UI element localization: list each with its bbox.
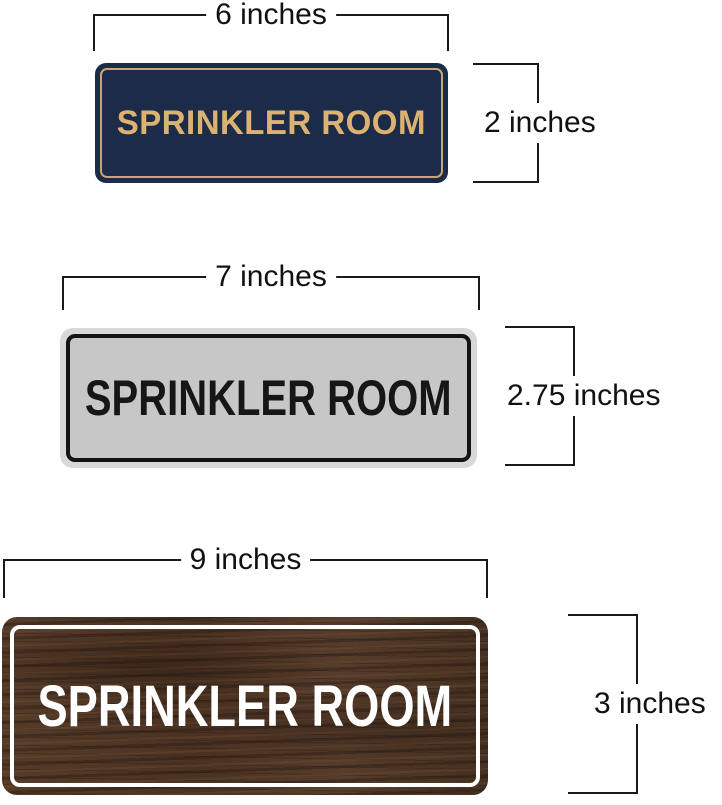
dimension-tick-bottom <box>473 181 539 183</box>
height-dimension-2-75in: 2.75 inches <box>505 326 575 466</box>
width-dimension-6in: 6 inches <box>93 14 449 51</box>
dimension-tick-top <box>473 63 539 65</box>
dimension-tick-right <box>447 14 449 51</box>
dimension-tick-bottom <box>568 792 638 794</box>
sign-navy-gold: SPRINKLER ROOM <box>95 63 448 183</box>
width-dimension-label: 6 inches <box>206 0 336 32</box>
width-dimension-7in: 7 inches <box>62 276 480 310</box>
dimension-tick-bottom <box>505 464 575 466</box>
sign-text: SPRINKLER ROOM <box>85 369 452 427</box>
sign-text: SPRINKLER ROOM <box>38 673 453 740</box>
height-dimension-3in: 3 inches <box>568 614 638 794</box>
height-dimension-label: 3 inches <box>587 684 713 724</box>
dimension-tick-left <box>3 559 5 598</box>
width-dimension-label: 9 inches <box>181 543 311 577</box>
width-dimension-label: 7 inches <box>206 260 336 294</box>
dimension-tick-right <box>486 559 488 598</box>
sign-text: SPRINKLER ROOM <box>117 104 426 143</box>
height-dimension-2in: 2 inches <box>473 63 539 183</box>
dimension-tick-top <box>505 326 575 328</box>
height-dimension-label: 2 inches <box>477 103 603 143</box>
sign-silver-black: SPRINKLER ROOM <box>60 328 477 468</box>
dimension-tick-right <box>478 276 480 310</box>
dimension-tick-left <box>62 276 64 310</box>
sign-walnut-white: SPRINKLER ROOM <box>2 617 488 795</box>
dimension-tick-left <box>93 14 95 51</box>
sign-dimension-diagram: 6 inches SPRINKLER ROOM 2 inches 7 inche… <box>0 0 722 805</box>
dimension-tick-top <box>568 614 638 616</box>
width-dimension-9in: 9 inches <box>3 559 488 598</box>
height-dimension-label: 2.75 inches <box>500 376 667 416</box>
